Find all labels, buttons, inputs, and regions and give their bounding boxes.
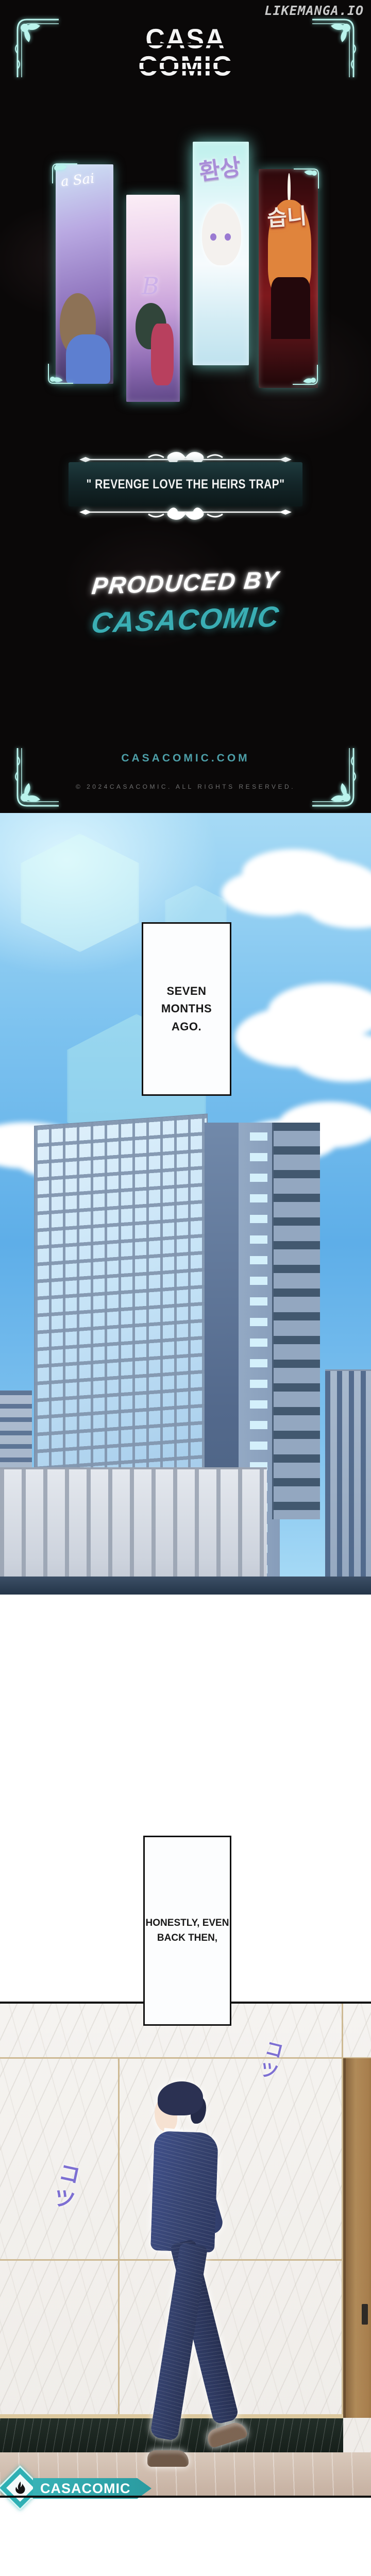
logo-stencil-slice: [139, 69, 232, 71]
website-url: CASACOMIC.COM: [0, 752, 371, 765]
cover-figure: [210, 233, 216, 241]
flame-icon: [13, 2481, 27, 2495]
door-handle: [362, 2304, 368, 2325]
cover-strip-saint: a Sai: [56, 164, 113, 384]
intro-section: LIKEMANGA.IO: [0, 0, 371, 813]
corner-flourish-icon: [49, 161, 78, 184]
cover-script-text: B: [142, 272, 159, 300]
cover-strip-fantasy: 환상: [193, 142, 249, 365]
marble-grout-line: [118, 2057, 120, 2415]
cover-korean-text: 습니: [266, 198, 308, 232]
lens-flare-hexagon: [21, 834, 139, 952]
logo-stencil-slice: [139, 43, 232, 45]
produced-by-text: PRODUCED BY: [0, 562, 371, 603]
cover-figure: [225, 233, 231, 241]
episode-title: " REVENGE LOVE THE HEIRS TRAP": [30, 477, 342, 492]
publisher-logo-line2: COMIC: [0, 53, 371, 80]
studio-name-text: CASACOMIC: [0, 596, 371, 642]
dress-shoe: [206, 2420, 248, 2449]
pinstripe-suit-torso: [150, 2131, 218, 2252]
cover-strip-romance: B: [126, 195, 180, 402]
cover-figure: [271, 277, 310, 339]
corner-flourish-icon: [293, 166, 322, 190]
cover-korean-text: 환상: [197, 148, 243, 187]
panel-border: [0, 2496, 371, 2498]
street-shadow-band: [0, 1577, 371, 1595]
character-hair: [158, 2081, 203, 2115]
walking-man-character: [144, 2081, 247, 2478]
wooden-door: [343, 2058, 371, 2418]
cover-figure: [202, 204, 241, 265]
divider-flourish-icon: [77, 441, 294, 465]
cloud: [268, 983, 371, 1040]
corner-flourish-icon: [292, 364, 321, 387]
divider-flourish-icon: [77, 507, 294, 531]
caption-box-honestly: HONESTLY, EVEN BACK THEN,: [143, 1836, 231, 2026]
marble-grout-line: [0, 2057, 371, 2059]
caption-box-seven-months: SEVEN MONTHS AGO.: [142, 922, 231, 1096]
webtoon-page: LIKEMANGA.IO: [0, 0, 371, 2576]
caption-text: HONESTLY, EVEN BACK THEN,: [146, 1916, 229, 1945]
copyright-notice: © 2024CASACOMIC. ALL RIGHTS RESERVED.: [0, 783, 371, 790]
dress-shoe: [147, 2450, 189, 2467]
balcony-tower: [272, 1123, 320, 1519]
cloud: [242, 849, 345, 895]
cover-figure: [151, 324, 174, 385]
watermark-label: CASACOMIC: [33, 2481, 131, 2497]
caption-text: SEVEN MONTHS AGO.: [161, 982, 212, 1035]
corner-flourish-icon: [45, 363, 74, 386]
cover-strip-crimson: 습니: [259, 169, 318, 388]
logo-stencil-slice: [139, 61, 232, 63]
foreground-building: [0, 1467, 267, 1595]
office-building-right: [325, 1369, 371, 1595]
publisher-logo-line1: CASA: [0, 26, 371, 53]
publisher-logo: CASA COMIC: [0, 26, 371, 80]
